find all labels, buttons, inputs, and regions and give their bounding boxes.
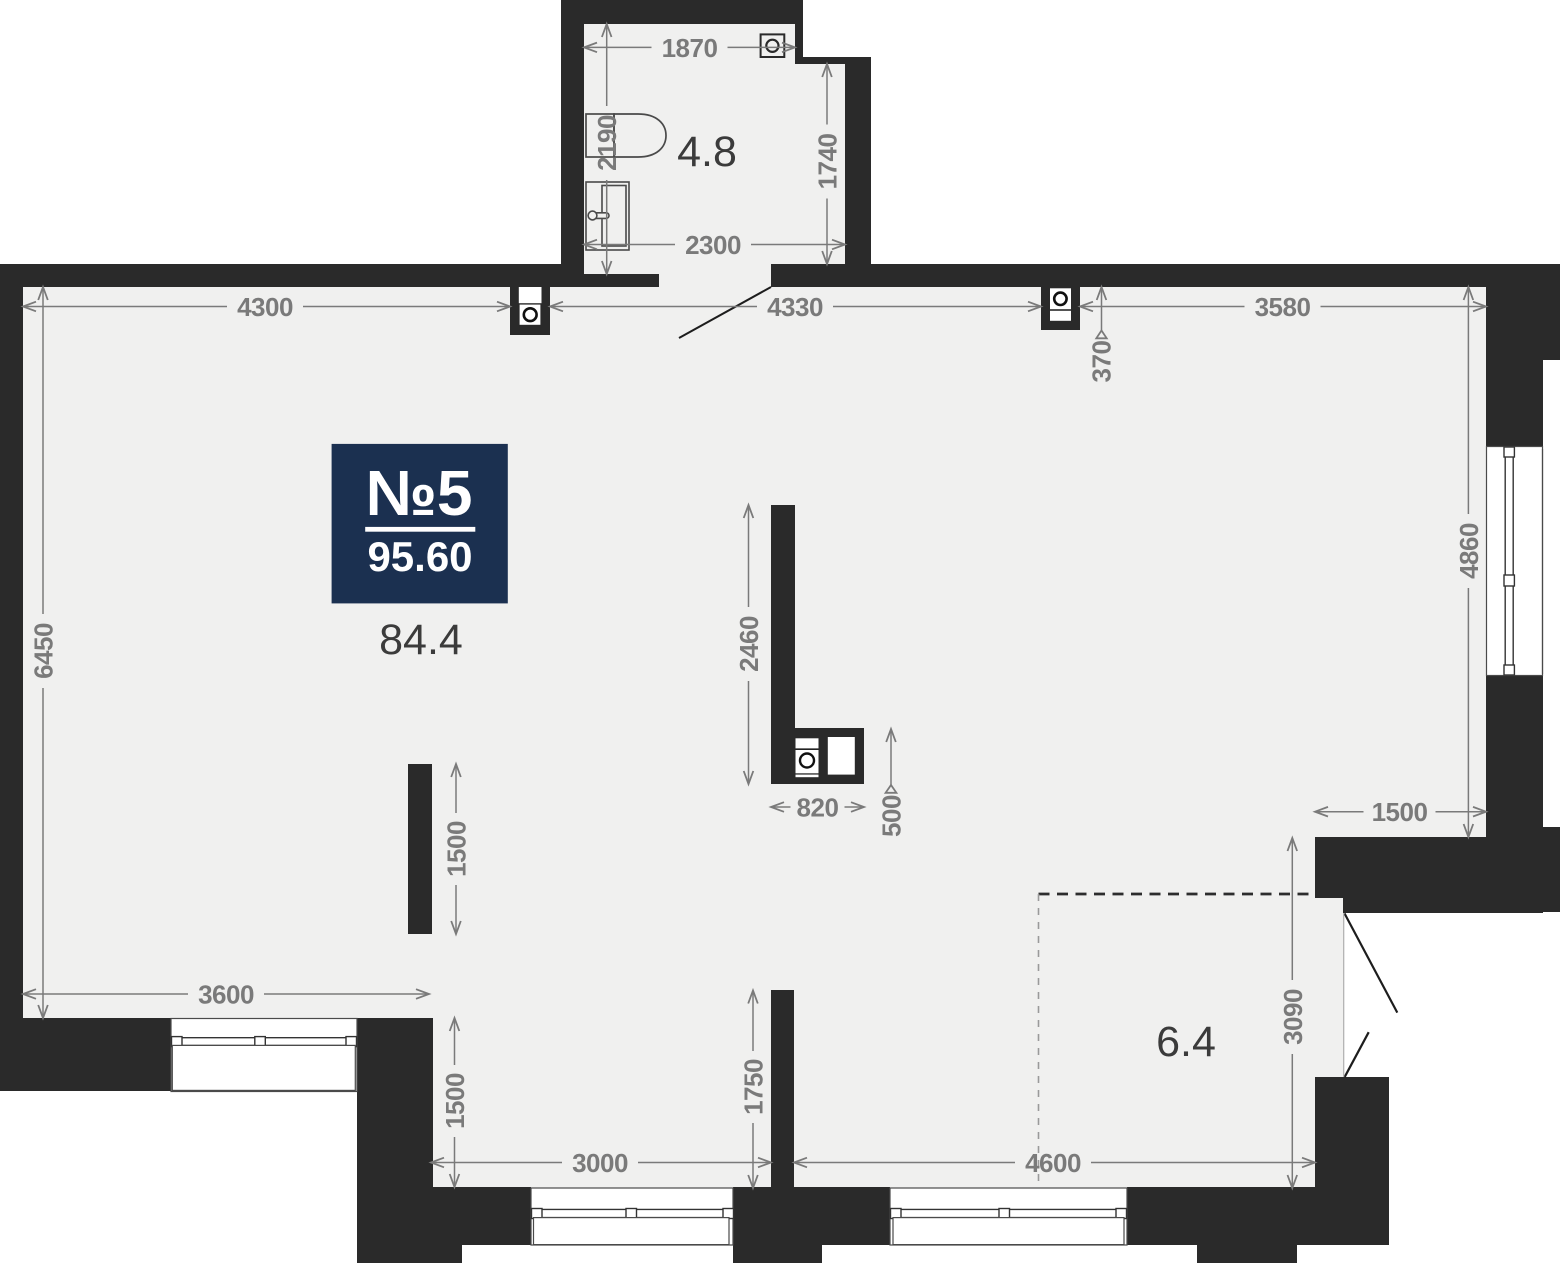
svg-text:3000: 3000: [572, 1148, 628, 1178]
svg-text:370: 370: [1087, 341, 1117, 383]
svg-text:1500: 1500: [442, 821, 472, 877]
svg-text:4330: 4330: [767, 292, 823, 322]
svg-text:2300: 2300: [685, 230, 741, 260]
svg-text:2190: 2190: [592, 115, 622, 171]
svg-text:6.4: 6.4: [1156, 1018, 1216, 1066]
svg-text:4300: 4300: [237, 292, 293, 322]
svg-text:820: 820: [797, 793, 839, 823]
svg-text:3580: 3580: [1255, 292, 1311, 322]
svg-text:4860: 4860: [1454, 523, 1484, 579]
svg-text:4.8: 4.8: [677, 128, 737, 176]
svg-text:84.4: 84.4: [379, 616, 463, 664]
svg-text:1500: 1500: [1372, 797, 1428, 827]
svg-text:1750: 1750: [739, 1059, 769, 1115]
svg-text:500: 500: [877, 795, 907, 837]
svg-text:3090: 3090: [1278, 989, 1308, 1045]
svg-text:3600: 3600: [198, 980, 254, 1010]
svg-text:6450: 6450: [29, 623, 59, 679]
svg-text:4600: 4600: [1025, 1148, 1081, 1178]
svg-text:1870: 1870: [662, 33, 718, 63]
svg-text:1500: 1500: [440, 1073, 470, 1129]
svg-text:№5: №5: [366, 457, 473, 529]
svg-text:95.60: 95.60: [367, 533, 472, 580]
svg-text:2460: 2460: [734, 616, 764, 672]
svg-text:1740: 1740: [813, 134, 843, 190]
